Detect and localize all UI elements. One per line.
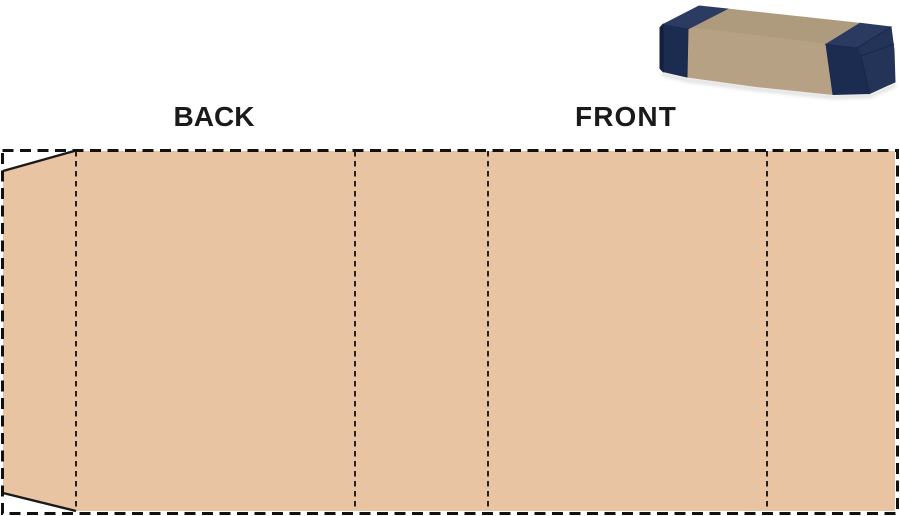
svg-text:BACK: BACK — [174, 101, 255, 132]
svg-text:FRONT: FRONT — [575, 101, 677, 132]
